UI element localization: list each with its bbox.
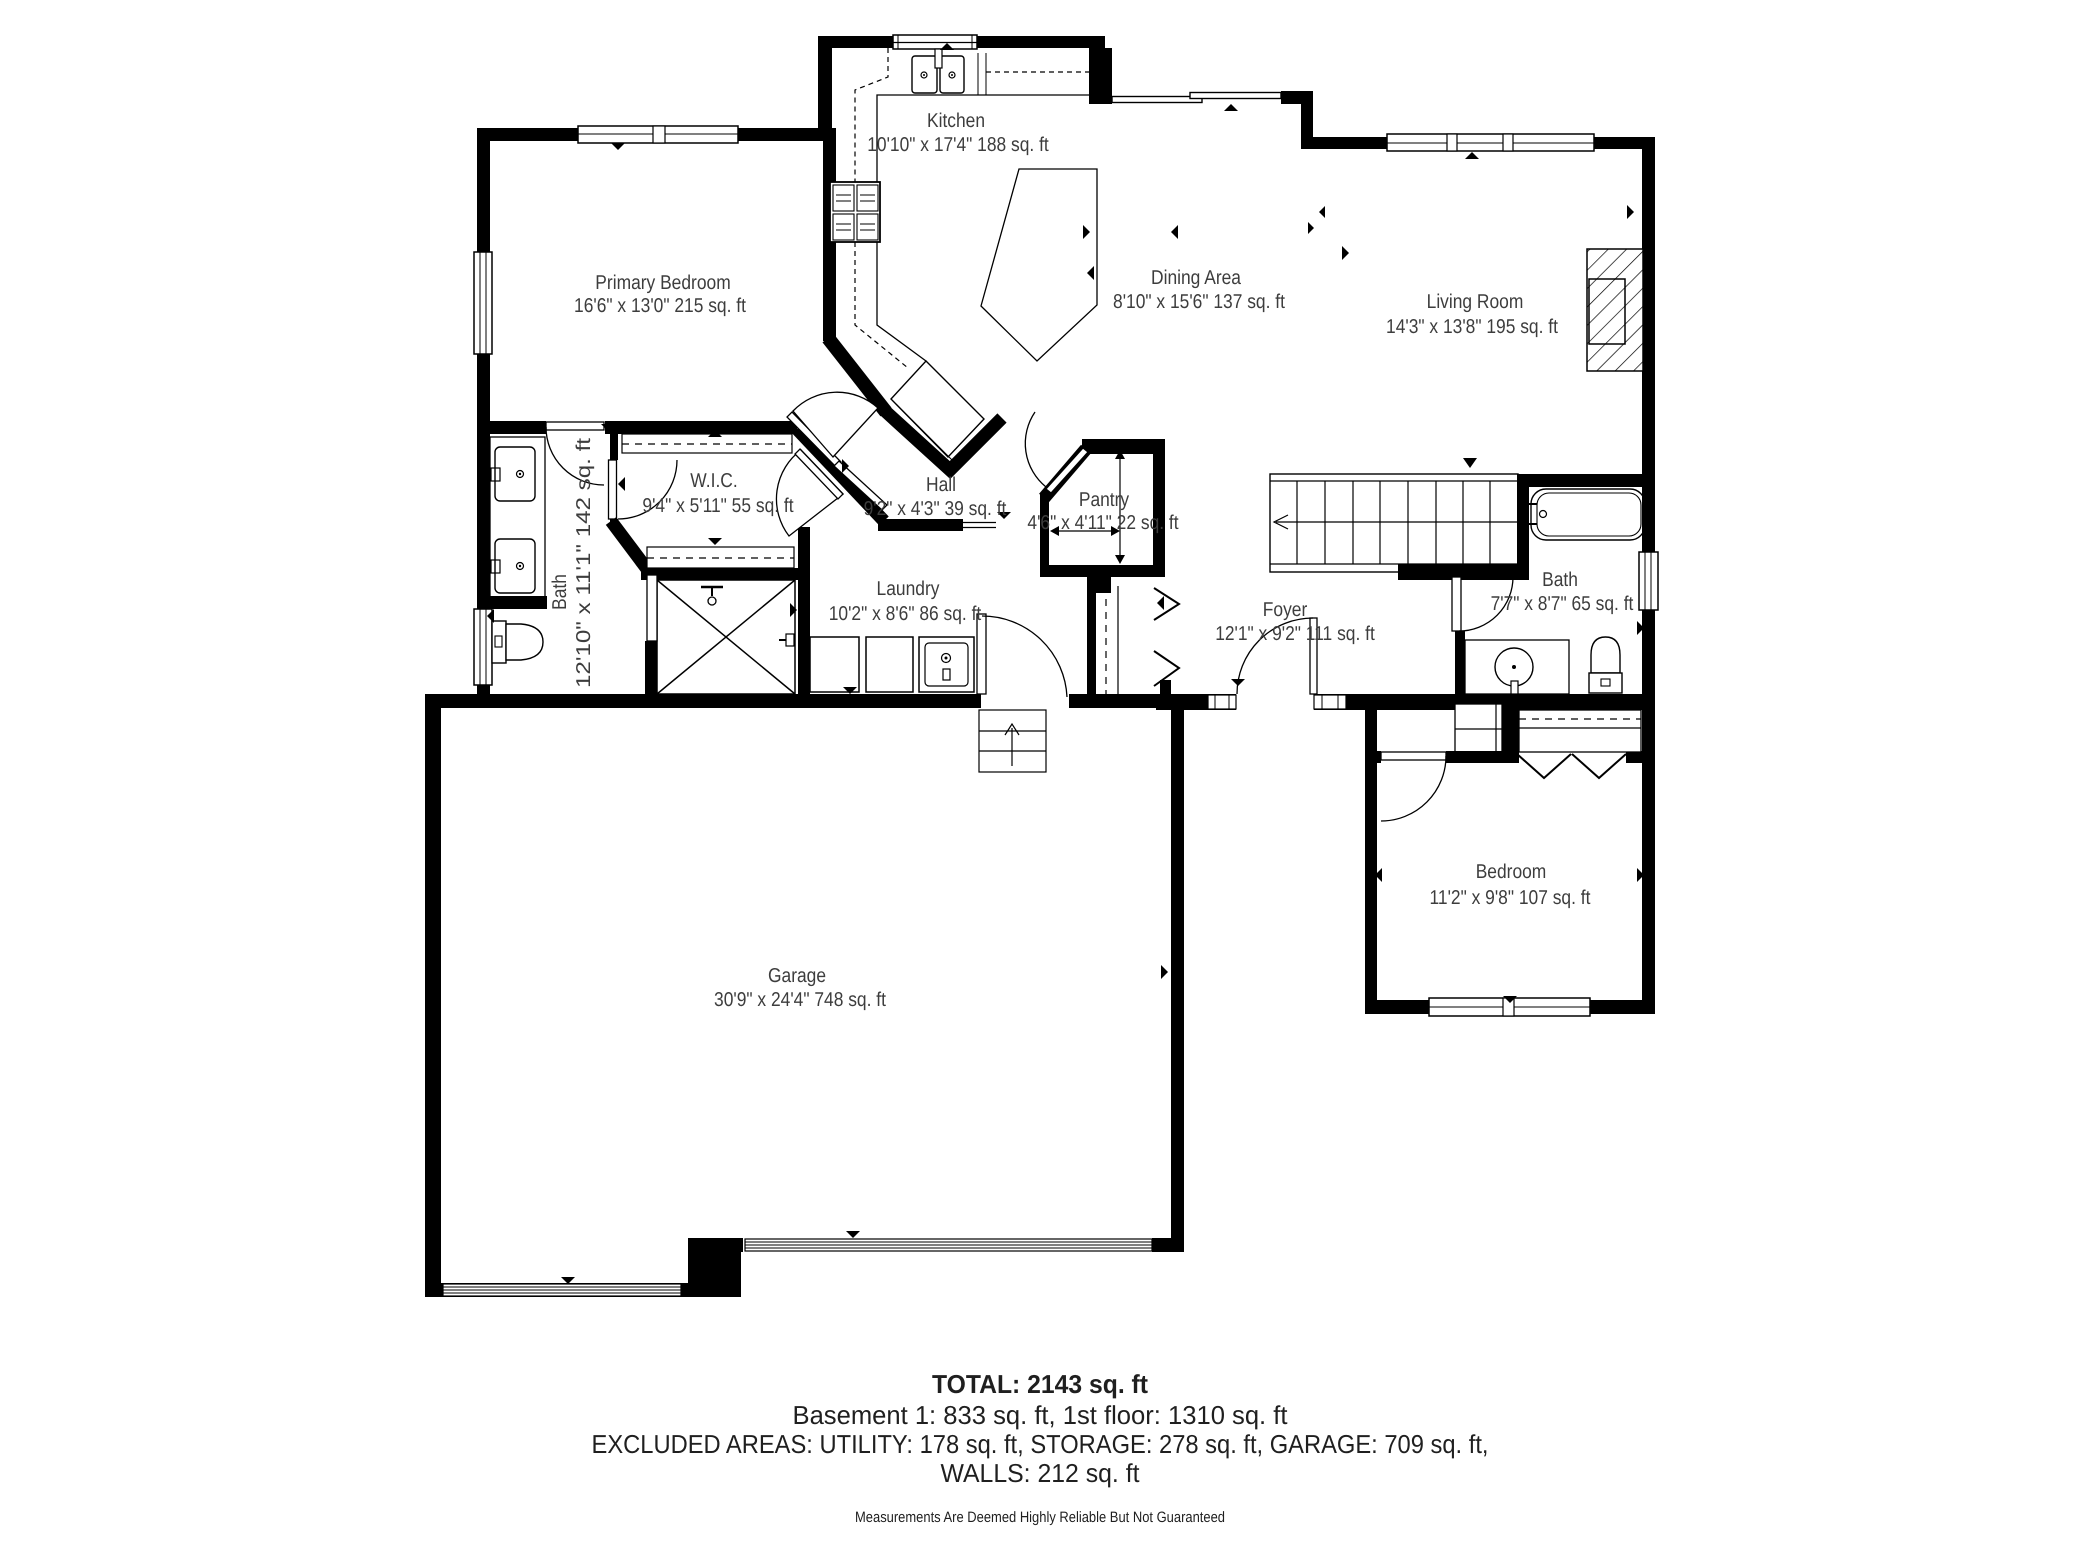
svg-text:9'2" x 4'3" 39 sq. ft: 9'2" x 4'3" 39 sq. ft xyxy=(864,498,1007,520)
svg-text:WALLS: 212 sq. ft: WALLS: 212 sq. ft xyxy=(941,1458,1141,1488)
svg-text:9'4" x 5'11" 55 sq. ft: 9'4" x 5'11" 55 sq. ft xyxy=(642,495,794,517)
svg-text:4'6" x 4'11" 22 sq. ft: 4'6" x 4'11" 22 sq. ft xyxy=(1027,512,1179,534)
svg-text:10'10" x 17'4" 188 sq. ft: 10'10" x 17'4" 188 sq. ft xyxy=(867,134,1049,156)
svg-text:Garage: Garage xyxy=(768,965,826,987)
svg-text:Kitchen: Kitchen xyxy=(927,110,985,132)
svg-text:10'2" x 8'6" 86 sq. ft: 10'2" x 8'6" 86 sq. ft xyxy=(829,603,982,625)
svg-text:Foyer: Foyer xyxy=(1263,599,1308,621)
svg-text:TOTAL: 2143 sq. ft: TOTAL: 2143 sq. ft xyxy=(932,1369,1148,1399)
svg-text:Basement 1: 833 sq. ft, 1st fl: Basement 1: 833 sq. ft, 1st floor: 1310 … xyxy=(793,1400,1289,1430)
svg-text:11'2" x 9'8" 107 sq. ft: 11'2" x 9'8" 107 sq. ft xyxy=(1430,887,1591,909)
svg-text:7'7" x 8'7" 65 sq. ft: 7'7" x 8'7" 65 sq. ft xyxy=(1491,593,1634,615)
svg-text:Primary Bedroom: Primary Bedroom xyxy=(595,272,730,294)
svg-text:Bath: Bath xyxy=(1542,569,1578,591)
svg-text:EXCLUDED AREAS: UTILITY: 178 s: EXCLUDED AREAS: UTILITY: 178 sq. ft, STO… xyxy=(592,1429,1489,1459)
svg-text:W.I.C.: W.I.C. xyxy=(690,470,737,492)
svg-text:30'9" x 24'4" 748 sq. ft: 30'9" x 24'4" 748 sq. ft xyxy=(714,989,886,1011)
svg-text:12'10" x 11'1" 142 sq. ft: 12'10" x 11'1" 142 sq. ft xyxy=(573,437,595,688)
svg-text:Living Room: Living Room xyxy=(1427,291,1524,313)
svg-text:Laundry: Laundry xyxy=(877,578,940,600)
svg-text:14'3" x 13'8" 195 sq. ft: 14'3" x 13'8" 195 sq. ft xyxy=(1386,316,1558,338)
svg-text:Pantry: Pantry xyxy=(1079,489,1129,511)
svg-text:12'1" x 9'2" 111 sq. ft: 12'1" x 9'2" 111 sq. ft xyxy=(1215,623,1375,645)
svg-text:16'6" x 13'0" 215 sq. ft: 16'6" x 13'0" 215 sq. ft xyxy=(574,295,746,317)
svg-text:Bath: Bath xyxy=(549,574,571,610)
svg-text:Measurements Are Deemed Highly: Measurements Are Deemed Highly Reliable … xyxy=(855,1509,1225,1526)
svg-text:8'10" x 15'6" 137 sq. ft: 8'10" x 15'6" 137 sq. ft xyxy=(1113,291,1285,313)
svg-text:Bedroom: Bedroom xyxy=(1476,861,1547,883)
svg-text:Hall: Hall xyxy=(926,474,956,496)
svg-text:Dining Area: Dining Area xyxy=(1151,267,1242,289)
